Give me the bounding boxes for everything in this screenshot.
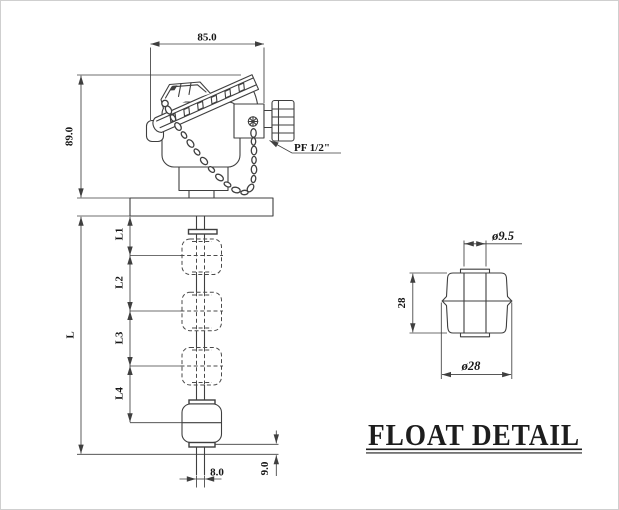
dim-l1-label: L1 xyxy=(114,228,126,241)
thread-size-label: PF 1/2" xyxy=(294,142,330,154)
stop-collar-float4-top xyxy=(189,400,215,404)
dim-l2-label: L2 xyxy=(114,276,126,289)
stop-collar-float4-bottom xyxy=(189,443,215,448)
dim-l4-label: L4 xyxy=(114,387,126,400)
float-detail-collar-top xyxy=(461,269,490,273)
head-neck-boss xyxy=(189,191,214,199)
dim-overall-length: L xyxy=(65,216,279,454)
dim-head-width-label: 85.0 xyxy=(197,32,217,44)
float-detail-body xyxy=(442,273,512,333)
float-detail-view: ø9.5 28 ø28 xyxy=(396,229,522,379)
float-detail-title: FLOAT DETAIL xyxy=(368,417,580,452)
float-1 xyxy=(181,239,224,275)
dim-float-height: 28 xyxy=(396,273,447,333)
stem-tip xyxy=(197,447,205,475)
conduit-fitting xyxy=(234,101,294,142)
dim-tip-length-label: 9.0 xyxy=(259,461,271,475)
dim-stem-diameter-label: 8.0 xyxy=(210,467,224,479)
cap-screw xyxy=(248,117,257,126)
dim-float-diameter-label: ø28 xyxy=(461,359,482,373)
thread-callout: PF 1/2" xyxy=(270,141,342,155)
hex-coupling xyxy=(272,101,294,142)
float-4 xyxy=(182,404,222,443)
dim-hole-diameter: ø9.5 xyxy=(464,229,522,267)
mounting-flange xyxy=(130,198,273,216)
fitting-neck xyxy=(264,111,272,128)
float-detail-title-block: FLOAT DETAIL xyxy=(366,417,582,453)
dim-stem-diameter: 8.0 xyxy=(180,467,225,488)
float-detail-collar-bottom xyxy=(461,333,490,337)
float-3 xyxy=(181,348,224,386)
stop-collar-top xyxy=(189,230,218,235)
drawing-sheet: 85.0 89.0 PF 1/2" L L1 L2 L3 L4 9.0 xyxy=(0,0,619,510)
dim-float-levels: L1 L2 L3 L4 xyxy=(114,217,183,423)
dim-overall-length-label: L xyxy=(65,331,77,338)
technical-drawing-canvas: 85.0 89.0 PF 1/2" L L1 L2 L3 L4 9.0 xyxy=(1,1,619,510)
dim-float-height-label: 28 xyxy=(396,297,408,309)
dim-hole-diameter-label: ø9.5 xyxy=(491,229,514,243)
connection-head xyxy=(147,75,295,199)
dim-tip-length: 9.0 xyxy=(215,431,279,477)
dim-head-height-label: 89.0 xyxy=(64,126,76,146)
float-2 xyxy=(181,292,224,330)
dim-l3-label: L3 xyxy=(114,331,126,344)
